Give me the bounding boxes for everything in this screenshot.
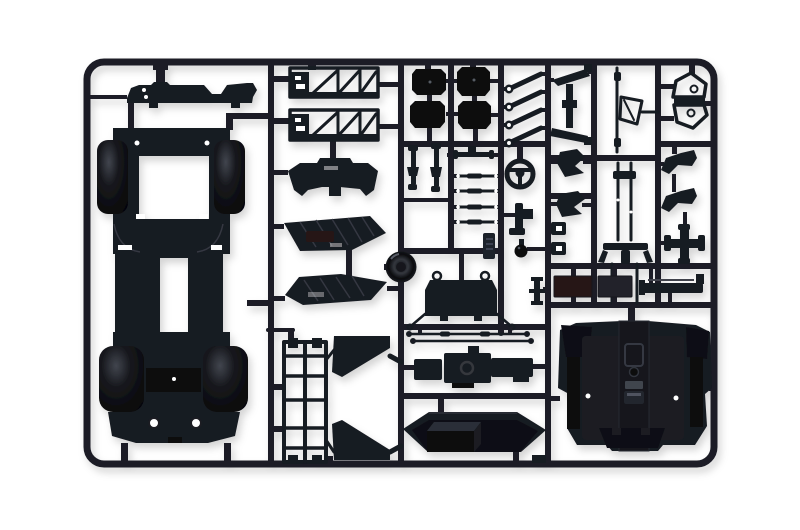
part-number-tag bbox=[483, 233, 495, 259]
part-interior-tub bbox=[548, 308, 716, 451]
photo-canvas bbox=[0, 0, 800, 530]
plate-maroon bbox=[554, 276, 592, 297]
plate-grey bbox=[598, 276, 632, 297]
sprue-photo bbox=[0, 0, 800, 530]
